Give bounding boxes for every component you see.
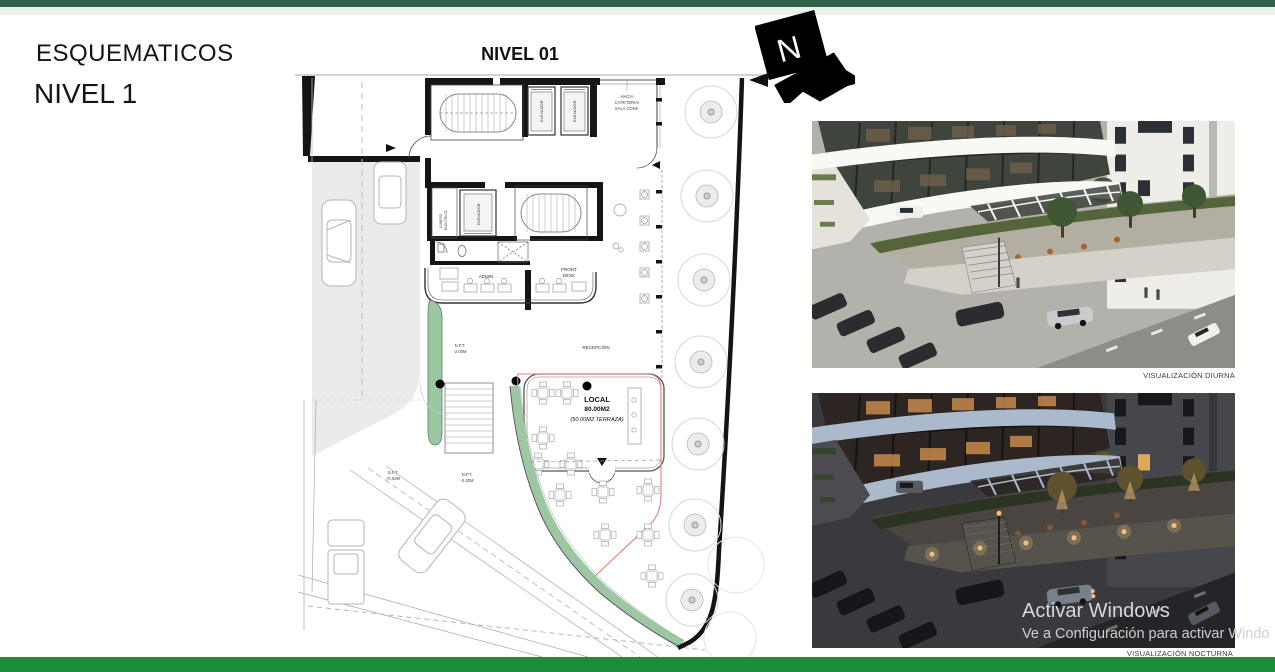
street-pole — [998, 513, 1000, 564]
svg-text:DESK: DESK — [563, 273, 576, 278]
truck-icon — [328, 520, 364, 604]
svg-text:(50.00M2 TERRAZA): (50.00M2 TERRAZA) — [570, 417, 623, 423]
day-rendering — [812, 121, 1235, 368]
north-arrow-icon: N — [755, 8, 855, 103]
local-red-boundary — [518, 374, 661, 578]
svg-text:FRONT: FRONT — [561, 267, 577, 272]
slide: ESQUEMATICOS NIVEL 1 NIVEL 01 N — [0, 0, 1275, 672]
bathrooms — [436, 242, 528, 262]
night-rendering — [812, 393, 1235, 648]
svg-text:RECEPCIÓN: RECEPCIÓN — [582, 344, 609, 350]
slide-subtitle: NIVEL 1 — [34, 78, 137, 110]
svg-text:-2.00M: -2.00M — [453, 349, 467, 354]
green-strip-west — [428, 300, 442, 445]
door-arrow-terrace — [597, 458, 607, 466]
hacia-cafeteria-label: HACIA CAFETERIA/ SALA CONF. — [615, 80, 640, 111]
svg-text:ELEVADOR: ELEVADOR — [539, 100, 544, 122]
svg-text:N.P.T.: N.P.T. — [455, 343, 466, 348]
plan-wall-left — [302, 76, 315, 156]
column-dot — [436, 380, 445, 389]
east-glass-wall — [656, 85, 662, 382]
stair-top — [431, 85, 523, 140]
door-arrow-left — [386, 144, 396, 152]
svg-text:+0.00M: +0.00M — [386, 476, 401, 481]
svg-text:ELEVADOR: ELEVADOR — [476, 203, 481, 225]
stair-mid — [515, 186, 587, 240]
door-arrow-right — [652, 161, 660, 169]
svg-text:-0.20M: -0.20M — [460, 478, 474, 483]
elevator-mid: ELEVADOR — [460, 190, 496, 236]
svg-text:ELEVADOR: ELEVADOR — [572, 100, 577, 122]
cuarto-electrico: CUARTO ELECTRICO — [432, 188, 457, 238]
car-icon — [395, 496, 469, 577]
elevator-top-2: ELEVADOR — [561, 87, 588, 135]
slide-title: ESQUEMATICOS — [36, 40, 234, 68]
exterior-stair — [445, 383, 493, 453]
header-strip — [0, 7, 1275, 15]
floor-plan: ELEVADOR ELEVADOR HACIA CAFETERIA/ SALA … — [290, 70, 770, 657]
elevator-top-1: ELEVADOR — [528, 87, 555, 135]
svg-text:ELECTRICO: ELECTRICO — [444, 210, 448, 230]
svg-text:N.P.T.: N.P.T. — [462, 472, 473, 477]
svg-text:LOCAL: LOCAL — [584, 395, 610, 404]
car-icon — [322, 200, 356, 286]
local-label: LOCAL 80.00M2 (50.00M2 TERRAZA) — [570, 395, 623, 423]
column-dot — [583, 382, 592, 391]
reception-chairs — [613, 190, 649, 303]
svg-text:SALA CONF.: SALA CONF. — [615, 106, 639, 111]
bottom-green-bar — [0, 657, 1275, 672]
caption-day: VISUALIZACIÓN DIURNA — [935, 371, 1235, 380]
svg-text:CUARTO: CUARTO — [439, 213, 443, 228]
street-pole — [998, 238, 1000, 287]
svg-text:HACIA: HACIA — [621, 94, 634, 99]
plan-title: NIVEL 01 — [380, 44, 660, 65]
column-dot — [512, 377, 521, 386]
top-green-bar — [0, 0, 1275, 7]
svg-text:80.00M2: 80.00M2 — [584, 406, 610, 413]
svg-text:CAFETERIA/: CAFETERIA/ — [615, 100, 640, 105]
car-icon — [374, 162, 406, 224]
terrace-planter — [628, 388, 641, 444]
tree-icons — [666, 86, 764, 657]
driveway — [308, 78, 420, 456]
